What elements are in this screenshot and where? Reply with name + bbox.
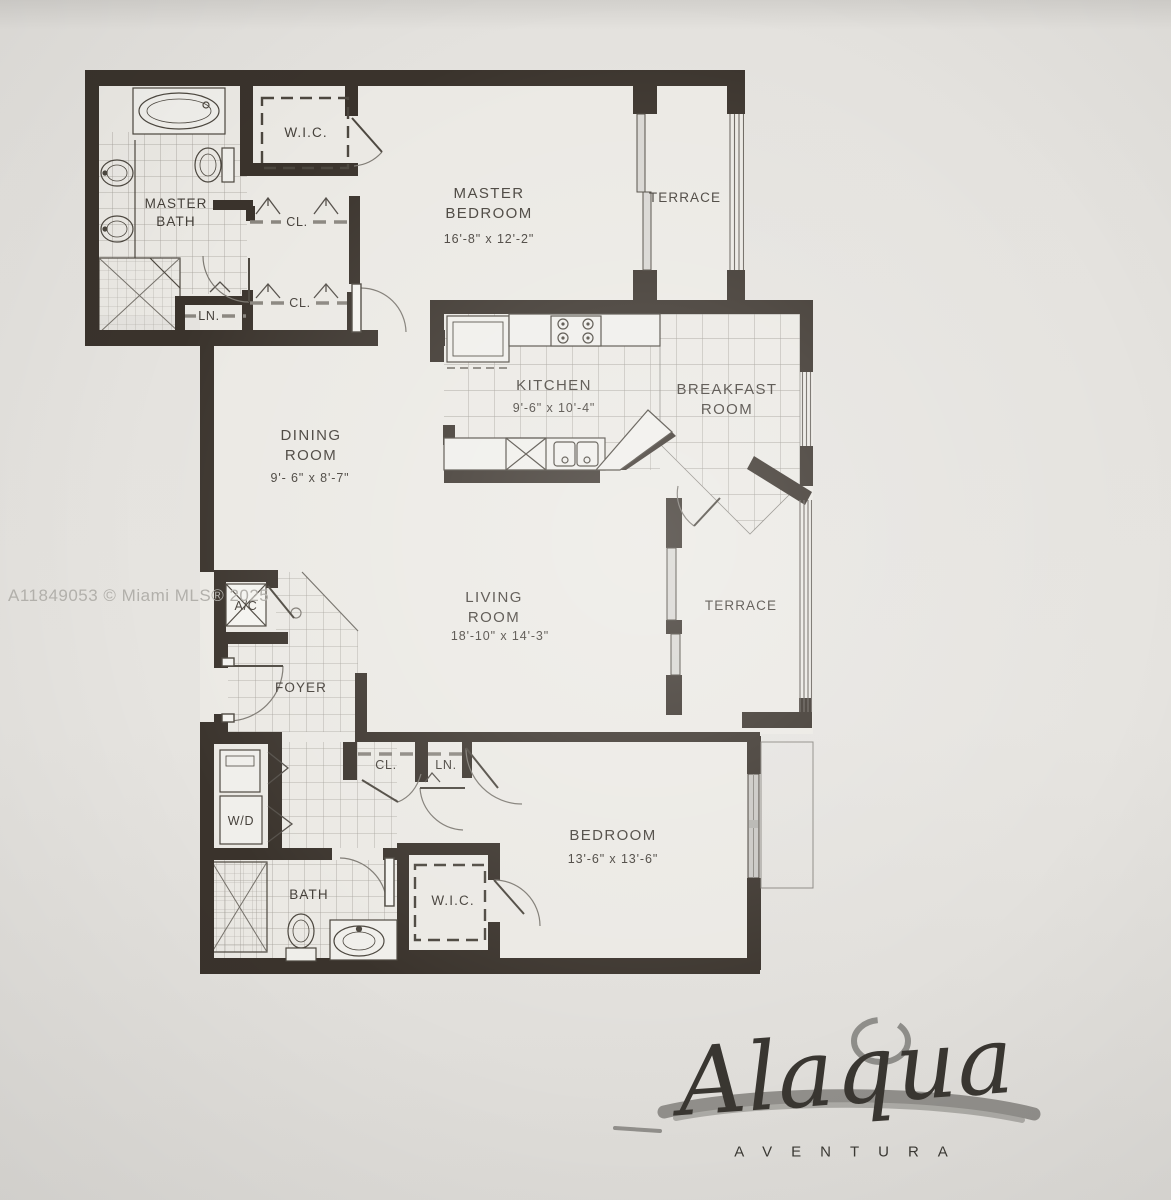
label-bedroom: BEDROOM bbox=[569, 826, 656, 846]
master-bedroom-slider bbox=[637, 114, 645, 192]
guest-shower bbox=[212, 862, 267, 952]
label-closet-1: CL. bbox=[286, 214, 308, 231]
dims-kitchen: 9'-6" x 10'-4" bbox=[513, 400, 596, 417]
label-wic-top: W.I.C. bbox=[284, 124, 327, 142]
label-foyer: FOYER bbox=[275, 679, 327, 697]
washer-dryer-units bbox=[220, 750, 262, 844]
label-kitchen: KITCHEN bbox=[516, 376, 592, 396]
label-linen-bottom: LN. bbox=[435, 757, 457, 774]
label-bath: BATH bbox=[289, 886, 328, 904]
label-linen-top: LN. bbox=[198, 308, 220, 325]
refrigerator bbox=[447, 316, 509, 368]
master-shower bbox=[99, 258, 180, 333]
dims-bedroom: 13'-6" x 13'-6" bbox=[568, 851, 658, 868]
label-master-bath: MASTER BATH bbox=[145, 195, 208, 231]
bath-door-leaf bbox=[385, 858, 394, 906]
stove bbox=[551, 316, 601, 346]
label-master-bedroom: MASTER BEDROOM bbox=[445, 184, 532, 224]
label-breakfast-room: BREAKFAST ROOM bbox=[677, 380, 778, 420]
label-living-room: LIVING ROOM bbox=[465, 588, 523, 628]
label-closet-2: CL. bbox=[289, 295, 311, 312]
bathtub bbox=[133, 88, 225, 134]
dims-dining-room: 9'- 6" x 8'-7" bbox=[270, 470, 349, 487]
guest-sink bbox=[330, 920, 397, 960]
master-hall-door-leaf bbox=[352, 284, 361, 332]
window-ledge bbox=[761, 742, 813, 888]
label-closet-bottom: CL. bbox=[375, 757, 397, 774]
label-wic-bottom: W.I.C. bbox=[431, 892, 474, 910]
label-washer-dryer: W/D bbox=[228, 813, 254, 830]
floor-plan-page: MASTER BATH W.I.C. CL. CL. LN. MASTER BE… bbox=[0, 0, 1171, 1200]
label-terrace-top: TERRACE bbox=[649, 189, 721, 207]
living-room-slider bbox=[667, 548, 676, 620]
dims-living-room: 18'-10" x 14'-3" bbox=[451, 628, 549, 645]
label-terrace-right: TERRACE bbox=[705, 597, 777, 615]
label-dining-room: DINING ROOM bbox=[281, 426, 342, 466]
logo-location: AVENTURA bbox=[715, 1144, 967, 1161]
dims-master-bedroom: 16'-8" x 12'-2" bbox=[444, 231, 534, 248]
mls-watermark: A11849053 © Miami MLS® 2025 bbox=[8, 586, 269, 606]
